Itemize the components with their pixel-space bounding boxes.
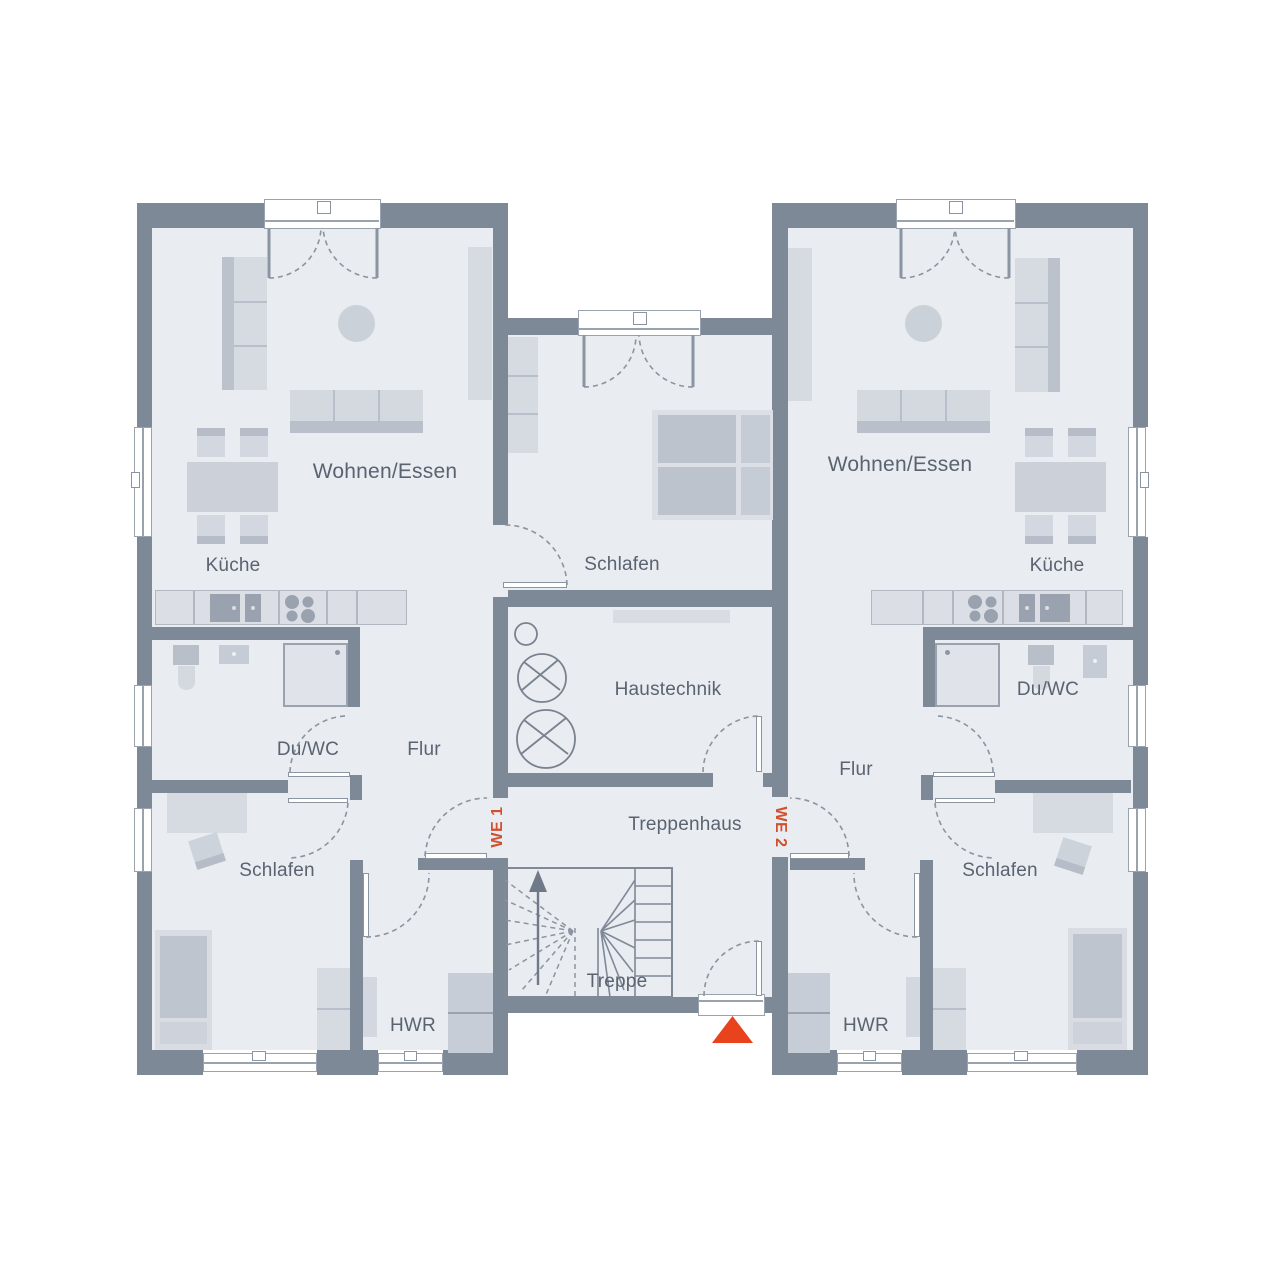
- window-handle: [404, 1051, 417, 1061]
- window-handle: [252, 1051, 266, 1061]
- wall: [508, 590, 772, 607]
- door-leaf: [503, 582, 567, 588]
- toilet-bowl: [178, 666, 195, 690]
- wall: [137, 537, 152, 685]
- wall: [137, 228, 152, 427]
- chair: [1068, 428, 1096, 457]
- bed-mattress: [658, 415, 736, 463]
- washer-dryer: [448, 973, 493, 1053]
- bed-mattress: [1073, 934, 1122, 1018]
- wall: [137, 1050, 203, 1075]
- wall: [508, 318, 582, 335]
- window: [134, 808, 152, 872]
- room-label-living-we1: Wohnen/Essen: [313, 460, 457, 484]
- wall: [1012, 203, 1148, 228]
- window-handle: [1014, 1051, 1028, 1061]
- wall: [350, 775, 362, 800]
- shelf: [1048, 258, 1060, 392]
- bed-foot: [1073, 1022, 1122, 1044]
- dining-table: [187, 462, 278, 512]
- door-leaf: [914, 873, 920, 937]
- chair: [197, 428, 225, 457]
- sofa: [290, 390, 423, 421]
- room-label-bath-we1: Du/WC: [277, 739, 339, 761]
- room-label-utility-we1: HWR: [390, 1015, 436, 1037]
- wardrobe: [317, 968, 350, 1050]
- kitchen-counter: [871, 590, 1123, 625]
- wall: [772, 857, 788, 1075]
- wall: [348, 640, 360, 707]
- bed-mattress: [658, 467, 736, 515]
- wall: [503, 997, 698, 1013]
- wall: [418, 858, 493, 870]
- dishwasher: [1019, 594, 1035, 622]
- chair: [197, 515, 225, 544]
- wall: [697, 318, 787, 335]
- wall: [493, 228, 508, 525]
- chair: [240, 515, 268, 544]
- chair: [240, 428, 268, 457]
- sofa-back: [857, 421, 990, 433]
- room-label-hall-we2: Flur: [839, 759, 873, 781]
- room-label-bath-we2: Du/WC: [1017, 679, 1079, 701]
- window-handle: [1140, 472, 1149, 488]
- wall: [1133, 537, 1148, 685]
- wall: [380, 203, 508, 228]
- wall: [1133, 872, 1148, 1075]
- desk: [1033, 793, 1113, 833]
- room-label-utility-we2: HWR: [843, 1015, 889, 1037]
- room-label-living-we2: Wohnen/Essen: [828, 453, 972, 477]
- room-label-technical: Haustechnik: [615, 679, 722, 701]
- sideboard: [788, 248, 812, 401]
- sofa: [857, 390, 990, 421]
- wall: [1077, 1050, 1148, 1075]
- wall: [493, 858, 508, 1075]
- kitchen-sink: [1040, 594, 1070, 622]
- floor-plan: Wohnen/Essen Küche Du/WC Flur Schlafen H…: [0, 0, 1280, 1280]
- unit-tag-we1: WE 1: [489, 806, 507, 847]
- room-label-bedroom-we2: Schlafen: [962, 860, 1038, 882]
- bed-pillow: [741, 467, 770, 515]
- wall: [921, 775, 933, 800]
- chair: [1025, 428, 1053, 457]
- wall: [995, 780, 1131, 793]
- kitchen-sink: [210, 594, 240, 622]
- wall: [152, 627, 360, 640]
- dishwasher: [245, 594, 261, 622]
- sideboard: [468, 247, 492, 400]
- door-handle: [317, 201, 331, 214]
- door-leaf: [933, 772, 995, 777]
- washer-dryer: [788, 973, 830, 1053]
- door-leaf: [363, 873, 369, 937]
- bed-pillow: [741, 415, 770, 463]
- chair: [1068, 515, 1096, 544]
- shelf: [234, 257, 267, 390]
- door-leaf: [425, 853, 487, 859]
- door-handle: [949, 201, 963, 214]
- chair: [1025, 515, 1053, 544]
- wall: [923, 627, 1133, 640]
- shelf: [1015, 258, 1048, 392]
- wall: [137, 747, 152, 808]
- window: [134, 685, 152, 747]
- wall: [763, 773, 772, 787]
- wall: [137, 872, 152, 1075]
- door-leaf: [790, 853, 849, 859]
- wall: [772, 203, 900, 228]
- utility-cabinet: [363, 977, 377, 1037]
- sofa-back: [290, 421, 423, 433]
- unit-tag-we2: WE 2: [771, 806, 789, 847]
- round-table: [338, 305, 375, 342]
- window: [1128, 685, 1146, 747]
- wall: [503, 773, 713, 787]
- wall: [1133, 228, 1148, 427]
- entrance-door-sill: [698, 994, 765, 1016]
- shower: [935, 643, 1000, 707]
- wall: [920, 860, 933, 1050]
- washbasin: [1083, 645, 1107, 678]
- room-label-kitchen-we2: Küche: [1030, 555, 1085, 577]
- bed-foot: [160, 1022, 207, 1044]
- dining-table: [1015, 462, 1106, 512]
- wall: [152, 780, 288, 793]
- room-label-hall-we1: Flur: [407, 739, 441, 761]
- wall: [923, 640, 935, 707]
- room-label-stairs: Treppe: [587, 971, 648, 993]
- room-label-bedroom-we1: Schlafen: [239, 860, 315, 882]
- toilet: [1028, 645, 1054, 665]
- wardrobe: [933, 968, 966, 1050]
- wall: [772, 228, 788, 797]
- wardrobe: [508, 337, 538, 453]
- door-leaf: [288, 772, 350, 777]
- bed-mattress: [160, 936, 207, 1018]
- window: [1128, 808, 1146, 872]
- window-handle: [863, 1051, 876, 1061]
- door-leaf: [935, 798, 995, 803]
- wall: [350, 860, 363, 1050]
- wall: [790, 858, 865, 870]
- entrance-marker: [712, 1016, 753, 1043]
- workbench: [613, 610, 730, 623]
- shelf: [222, 257, 234, 390]
- wall: [137, 203, 268, 228]
- wall: [317, 1050, 378, 1075]
- door-handle: [633, 312, 647, 325]
- room-label-stairwell: Treppenhaus: [628, 814, 741, 836]
- desk: [167, 793, 247, 833]
- wall: [902, 1050, 967, 1075]
- door-leaf: [756, 716, 762, 772]
- door-leaf: [756, 941, 762, 996]
- shower: [283, 643, 348, 707]
- door-leaf: [288, 798, 348, 803]
- kitchen-counter: [155, 590, 407, 625]
- toilet: [173, 645, 199, 665]
- round-table: [905, 305, 942, 342]
- washbasin: [219, 645, 249, 664]
- wall: [1133, 747, 1148, 808]
- room-label-bedroom-middle: Schlafen: [584, 554, 660, 576]
- window-handle: [131, 472, 140, 488]
- wall: [493, 597, 508, 798]
- wall: [765, 997, 772, 1013]
- utility-cabinet: [906, 977, 920, 1037]
- room-label-kitchen-we1: Küche: [206, 555, 261, 577]
